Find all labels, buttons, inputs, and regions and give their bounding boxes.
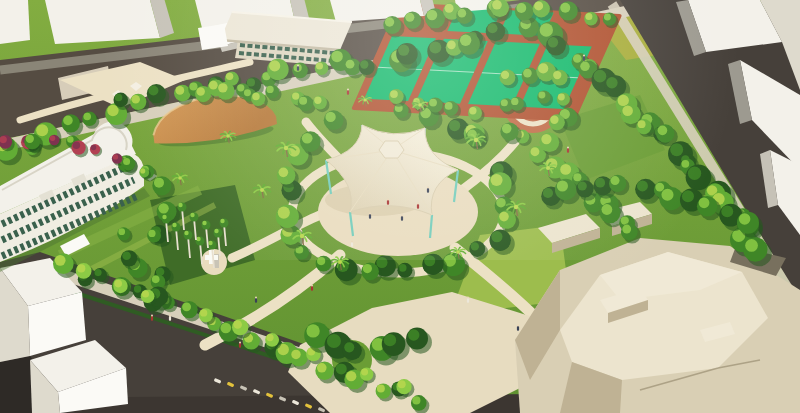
rendering-canvas: [0, 0, 800, 413]
park-aerial-rendering: Aerial architectural rendering of a trop…: [0, 0, 800, 413]
sunlight-glare: [0, 0, 800, 260]
